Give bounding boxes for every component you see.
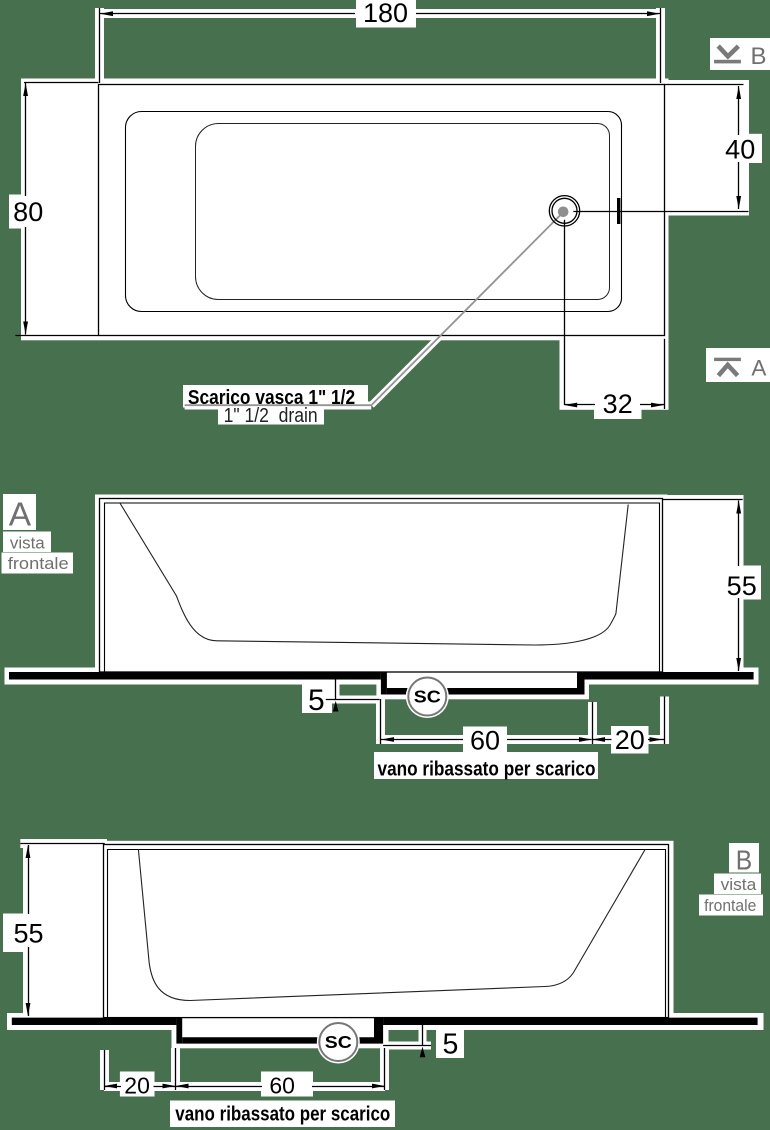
svg-text:frontale: frontale — [8, 554, 69, 573]
svg-text:60: 60 — [470, 725, 500, 755]
svg-text:vista: vista — [10, 534, 45, 553]
svg-text:32: 32 — [603, 389, 633, 419]
svg-text:55: 55 — [13, 919, 43, 949]
svg-text:B: B — [751, 43, 767, 70]
svg-text:1" 1/2 drain: 1" 1/2 drain — [224, 405, 318, 427]
svg-text:vista: vista — [721, 875, 757, 894]
svg-text:SC: SC — [414, 687, 441, 707]
svg-text:vano ribassato per scarico: vano ribassato per scarico — [175, 1104, 390, 1126]
svg-text:20: 20 — [124, 1073, 150, 1099]
svg-text:frontale: frontale — [704, 896, 756, 915]
svg-text:60: 60 — [269, 1072, 295, 1098]
svg-text:A: A — [751, 356, 766, 381]
svg-text:180: 180 — [363, 0, 408, 28]
svg-text:A: A — [9, 496, 32, 533]
svg-text:40: 40 — [725, 134, 755, 164]
svg-text:55: 55 — [727, 571, 757, 601]
svg-text:B: B — [736, 844, 752, 875]
svg-text:5: 5 — [308, 684, 325, 717]
svg-text:20: 20 — [615, 725, 645, 755]
svg-text:5: 5 — [442, 1028, 458, 1060]
svg-text:80: 80 — [13, 197, 43, 227]
svg-text:SC: SC — [325, 1032, 352, 1052]
svg-text:vano ribassato per scarico: vano ribassato per scarico — [378, 759, 596, 781]
